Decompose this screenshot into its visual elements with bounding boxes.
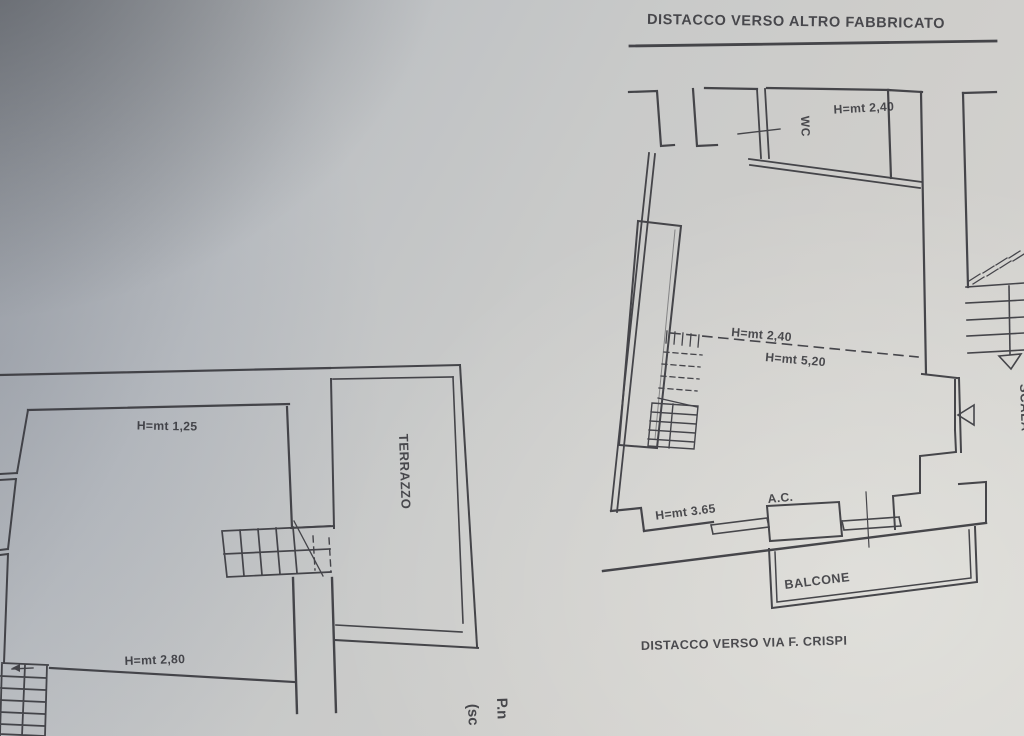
exterior-right-wall [921, 92, 926, 374]
stairwell-left-wall [963, 93, 968, 287]
wc-bottom-diagonal-wall [749, 159, 922, 188]
entry-wall-stub [693, 89, 717, 146]
ladder-stair [0, 663, 48, 736]
terrace-left-wall-lower [332, 578, 336, 712]
stair-dashed-continuation [313, 536, 331, 572]
stair-arrow-head [12, 664, 20, 672]
terrace-bottom-inner [336, 625, 462, 632]
terrace-top-outer [330, 365, 460, 368]
main-plan-walls [603, 88, 986, 571]
bottom-boundary-title: DISTACCO VERSO VIA F. CRISPI [641, 634, 848, 653]
bottom-right-stepped-wall [893, 374, 986, 529]
window-right [842, 517, 901, 530]
partial-text-sc: (sc [464, 704, 482, 726]
top-boundary-line [630, 41, 996, 46]
terrace-right-inner [453, 377, 463, 623]
stairwell-steps [966, 283, 1024, 353]
top-wall-right [767, 88, 890, 90]
bottom-inner-wall [644, 522, 713, 531]
room-height-label: H=mt 2,80 [124, 652, 185, 668]
wall-height-label: H=mt 3.65 [655, 501, 717, 522]
exterior-bottom-wall [603, 523, 986, 571]
room-right-wall [287, 407, 292, 528]
room-height-wall-line [50, 668, 294, 682]
top-left-wall-stub [629, 91, 674, 146]
room-top-wall [28, 404, 289, 410]
stairwell-top-stub [963, 92, 996, 93]
bottom-left-stair [0, 663, 48, 736]
stair-break-line [294, 521, 323, 576]
terrace-label: TERRAZZO [396, 434, 414, 510]
parapet-height-label: H=mt 1,25 [137, 418, 198, 433]
ac-label: A.C. [767, 490, 794, 506]
ac-unit-box [767, 502, 842, 541]
terrace-top-inner [333, 377, 453, 379]
stairwell-direction-arrow [999, 354, 1021, 369]
balcony-label: BALCONE [784, 570, 851, 592]
exterior-left-wall [611, 153, 655, 512]
wc-partition-wall [757, 89, 769, 158]
partial-text-pn: P.n [493, 698, 511, 720]
wc-label: WC [798, 116, 813, 138]
stairwell-hatch-marks [969, 251, 1024, 284]
stairwell-label: SCALA [1017, 384, 1024, 432]
site-boundary-line [0, 368, 330, 375]
terrace-bottom-outer [335, 640, 478, 648]
terrace-left-wall [331, 379, 334, 528]
height-low-label: H=mt 2,40 [731, 325, 793, 344]
top-boundary-title: DISTACCO VERSO ALTRO FABBRICATO [647, 12, 945, 32]
scanned-floor-plan-photo: DISTACCO VERSO ALTRO FABBRICATO DISTACCO… [0, 0, 1024, 736]
stairwell-scala [958, 92, 1024, 425]
corridor-wall [293, 578, 297, 713]
terrace-walls [291, 365, 478, 712]
top-right-cap [888, 90, 922, 92]
main-plan [603, 41, 1024, 608]
wc-room-height-label: H=mt 2,40 [833, 99, 894, 116]
bottom-left-corner-wall [611, 508, 644, 531]
stair-solid-steps [648, 403, 698, 449]
balcony-inner-edge [775, 530, 971, 602]
top-wall-left [705, 88, 757, 89]
height-high-label: H=mt 5,20 [765, 350, 827, 369]
left-plan-stair [222, 521, 331, 577]
left-plan [0, 365, 478, 736]
stairwell-rail [1009, 286, 1010, 354]
floor-plan-drawing: DISTACCO VERSO ALTRO FABBRICATO DISTACCO… [0, 0, 1024, 736]
stair-break-diagonal [658, 398, 697, 407]
room-left-jagged-wall [0, 410, 28, 663]
window-left [711, 518, 769, 534]
